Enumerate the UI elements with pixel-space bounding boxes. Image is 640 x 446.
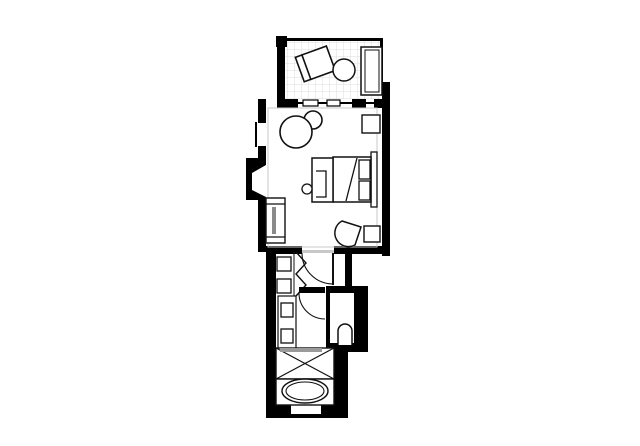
- bed-pillow-1: [359, 160, 370, 179]
- stool: [302, 184, 312, 194]
- wall-bath-right: [334, 352, 348, 406]
- vestibule-shelf-2: [277, 279, 291, 293]
- bottom-wall-notch: [291, 405, 321, 414]
- window-slit-outer-line: [255, 122, 257, 147]
- wall-vestibule-left: [266, 250, 276, 406]
- wall-right-main: [382, 99, 390, 256]
- floorplan-svg: [0, 0, 640, 446]
- wall-corridor-right: [345, 252, 352, 288]
- armchair: [335, 221, 361, 247]
- toilet: [338, 324, 352, 345]
- shower-threshold: [280, 348, 322, 352]
- wall-left-mid: [258, 146, 266, 160]
- bath-cabinet-box-2: [281, 329, 293, 343]
- balcony-round-table: [333, 59, 355, 81]
- wall-left-lower: [258, 200, 266, 252]
- bed-headboard: [371, 152, 377, 207]
- wall-facade-left: [277, 99, 298, 108]
- window-tab-2: [327, 100, 340, 106]
- wall-facade-mid: [352, 99, 366, 108]
- bench-desk: [312, 158, 333, 202]
- wall-balcony-top: [277, 38, 383, 41]
- bathtub-rim: [282, 379, 328, 403]
- round-chair: [280, 116, 312, 148]
- bathroom-door-swing-arc: [299, 293, 325, 319]
- vestibule-shelf-1: [277, 257, 291, 271]
- bed-pillow-2: [359, 181, 370, 200]
- nightstand-top: [362, 115, 380, 133]
- floorplan-shapes: [246, 36, 390, 418]
- wardrobe-rod: [272, 207, 276, 234]
- bath-cabinet-box-1: [281, 303, 293, 317]
- wall-left-upper: [258, 99, 266, 123]
- floorplan-canvas: [0, 0, 640, 446]
- entry-door-swing-arc: [302, 253, 333, 284]
- bedroom-opening-sill: [302, 250, 334, 253]
- window-tab-1: [303, 100, 318, 106]
- bathroom-door-leaf: [299, 287, 325, 293]
- wall-balcony-left: [277, 36, 285, 106]
- window-line-right: [366, 102, 374, 104]
- side-table: [364, 226, 380, 242]
